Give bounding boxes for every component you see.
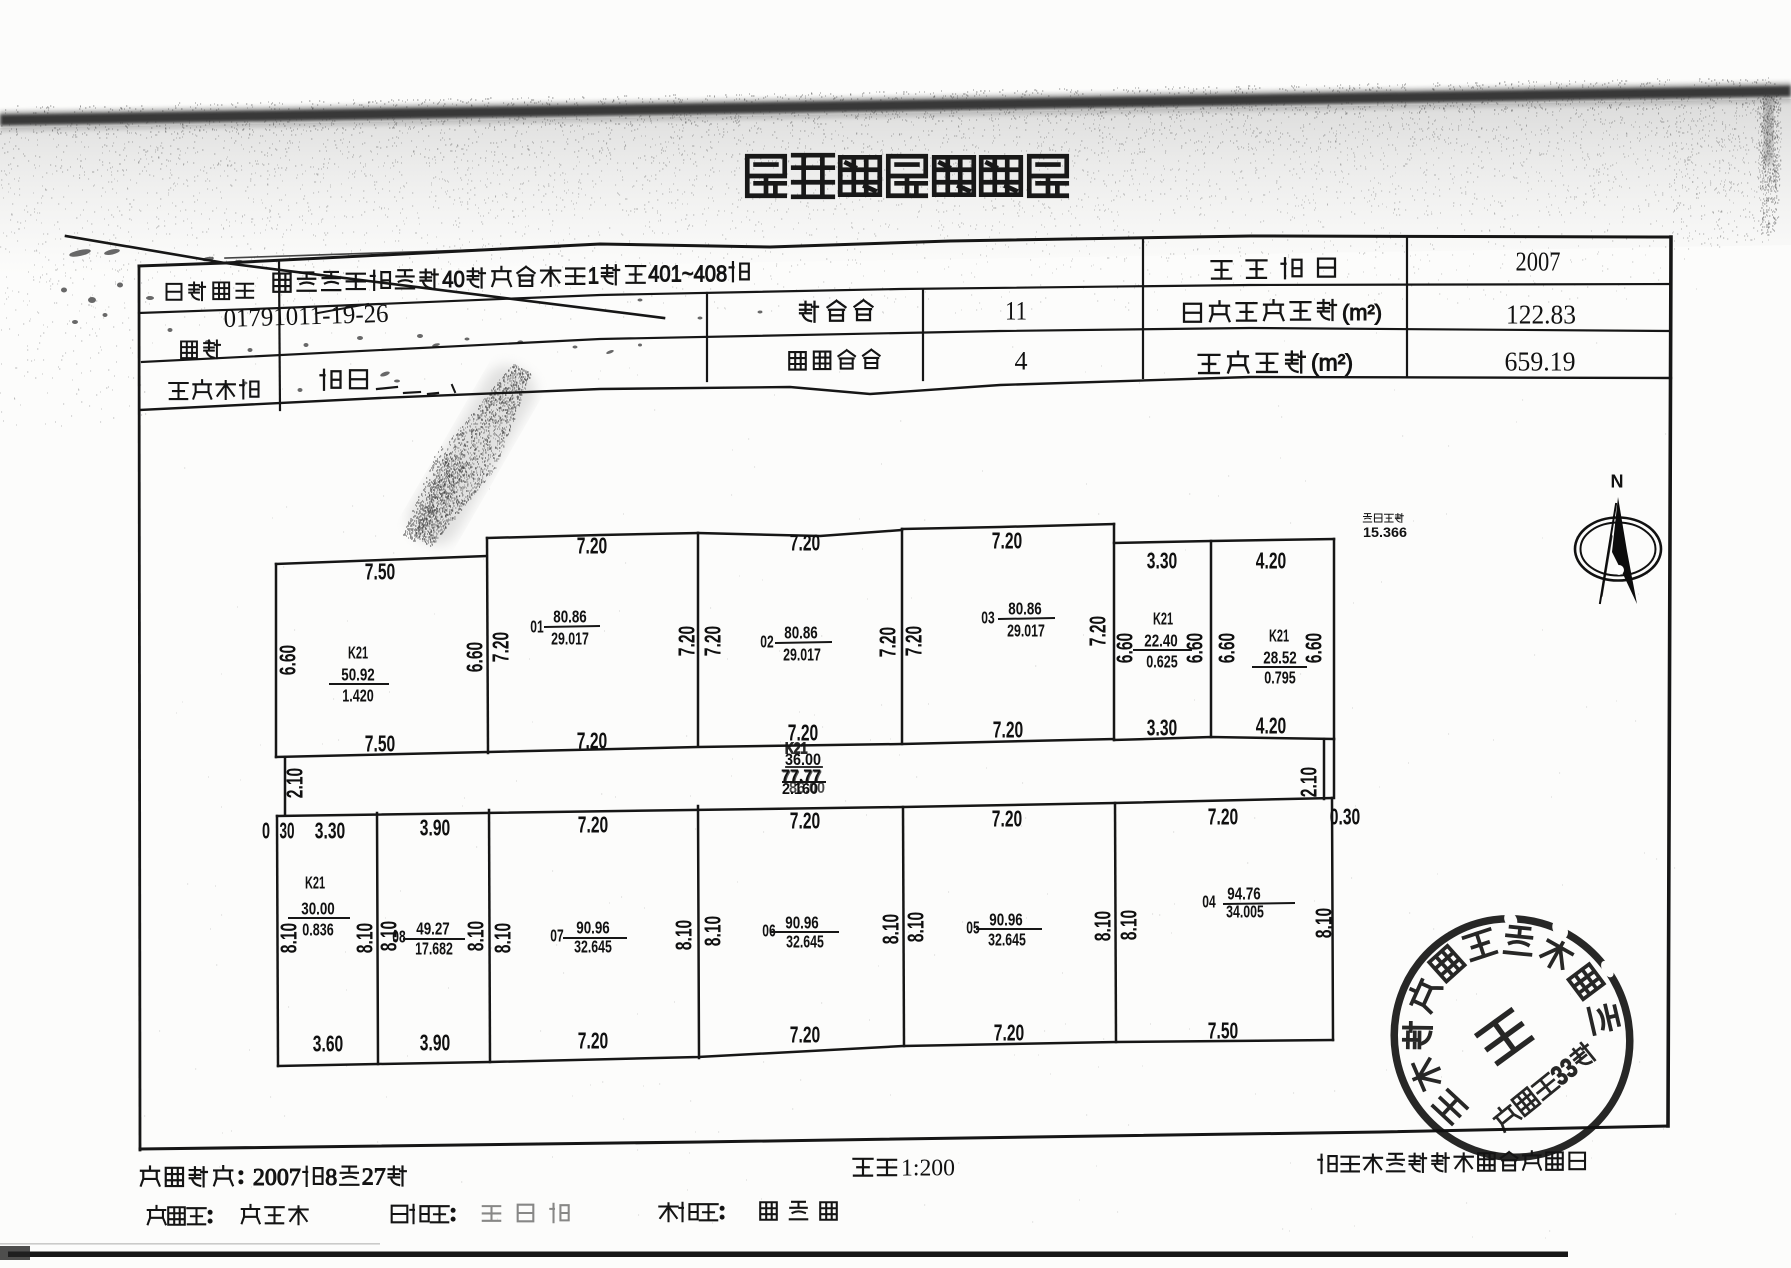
svg-text:0: 0 (262, 818, 270, 844)
svg-text:11: 11 (1005, 296, 1027, 325)
svg-text:32.645: 32.645 (988, 929, 1026, 949)
svg-text:1: 1 (588, 263, 599, 289)
svg-text:0.836: 0.836 (302, 919, 334, 939)
svg-text:401~408: 401~408 (648, 260, 727, 286)
svg-text:8.10: 8.10 (352, 923, 378, 953)
svg-text:3.90: 3.90 (420, 1030, 450, 1056)
svg-text:7.20: 7.20 (577, 728, 607, 754)
svg-text:1:200: 1:200 (901, 1156, 955, 1182)
svg-text:7.20: 7.20 (674, 626, 700, 656)
svg-text:29.017: 29.017 (551, 628, 589, 648)
svg-text:8.10: 8.10 (1311, 908, 1337, 938)
svg-text:K21: K21 (1153, 608, 1173, 628)
svg-text:7.20: 7.20 (578, 1028, 608, 1054)
svg-text:28.52: 28.52 (1263, 647, 1297, 667)
svg-text:122.83: 122.83 (1506, 300, 1576, 330)
svg-text:05: 05 (966, 917, 980, 937)
svg-text:7.20: 7.20 (790, 530, 820, 556)
svg-text:8.10: 8.10 (671, 920, 697, 950)
svg-text:3.30: 3.30 (1147, 548, 1177, 574)
svg-text:49.27: 49.27 (416, 918, 450, 938)
svg-text:86.00: 86.00 (789, 780, 825, 797)
svg-text:7.20: 7.20 (901, 626, 927, 656)
svg-text:8: 8 (325, 1165, 337, 1191)
svg-text:7.20: 7.20 (700, 626, 726, 656)
svg-text:15.366: 15.366 (1363, 524, 1407, 540)
svg-text:K21: K21 (305, 872, 325, 892)
svg-text:7.50: 7.50 (365, 559, 395, 585)
svg-text:30.00: 30.00 (301, 898, 335, 918)
svg-text:07: 07 (550, 925, 563, 945)
svg-text:0.30: 0.30 (1330, 804, 1360, 830)
svg-text:94.76: 94.76 (1227, 883, 1261, 903)
svg-text:32.645: 32.645 (574, 936, 612, 956)
svg-text:7.50: 7.50 (1208, 1018, 1238, 1044)
svg-text:8.10: 8.10 (903, 912, 929, 942)
svg-text:30: 30 (280, 818, 295, 844)
svg-text:7.50: 7.50 (365, 731, 395, 757)
svg-text:7.20: 7.20 (790, 808, 820, 834)
svg-text:8.10: 8.10 (490, 923, 516, 953)
svg-text:90.96: 90.96 (576, 917, 610, 937)
svg-text:7.20: 7.20 (488, 632, 514, 662)
svg-text:6.60: 6.60 (275, 645, 301, 675)
svg-text:K21: K21 (348, 642, 368, 662)
svg-text:27: 27 (362, 1165, 386, 1191)
svg-text:90.96: 90.96 (989, 909, 1023, 929)
svg-text:(m²): (m²) (1311, 349, 1353, 375)
svg-text:7.20: 7.20 (994, 1020, 1024, 1046)
svg-text:8.10: 8.10 (1116, 910, 1142, 940)
svg-text:0.795: 0.795 (1264, 667, 1296, 687)
svg-text:29.017: 29.017 (783, 644, 821, 664)
svg-text:22.40: 22.40 (1144, 630, 1178, 650)
svg-text:3.30: 3.30 (1147, 715, 1177, 741)
svg-text:29.017: 29.017 (1007, 620, 1045, 640)
svg-text:2007: 2007 (1516, 247, 1561, 277)
svg-text:K21: K21 (1269, 625, 1289, 645)
svg-text:4.20: 4.20 (1256, 548, 1286, 574)
svg-text:0.625: 0.625 (1146, 651, 1178, 671)
svg-text:04: 04 (1202, 891, 1216, 911)
svg-text:50.92: 50.92 (341, 664, 375, 684)
svg-text:7.20: 7.20 (578, 812, 608, 838)
svg-text:2.10: 2.10 (1296, 767, 1322, 797)
svg-text:4.20: 4.20 (1256, 713, 1286, 739)
svg-text:7.20: 7.20 (993, 717, 1023, 743)
svg-text:7.20: 7.20 (992, 806, 1022, 832)
svg-text:2.10: 2.10 (282, 768, 308, 798)
svg-text:3.60: 3.60 (313, 1031, 343, 1057)
svg-text:659.19: 659.19 (1505, 347, 1576, 377)
svg-text:17.682: 17.682 (415, 938, 453, 958)
svg-text:90.96: 90.96 (785, 912, 819, 932)
svg-text:7.20: 7.20 (992, 528, 1022, 554)
svg-text:7.20: 7.20 (577, 533, 607, 559)
svg-text:3.30: 3.30 (315, 818, 345, 844)
svg-text:7.20: 7.20 (875, 627, 901, 657)
svg-text:1.420: 1.420 (342, 685, 374, 705)
svg-text:40: 40 (442, 266, 465, 292)
svg-text:8.10: 8.10 (878, 914, 904, 944)
svg-text:6.60: 6.60 (1301, 633, 1327, 663)
svg-text:3.90: 3.90 (420, 815, 450, 841)
svg-text:4: 4 (1015, 346, 1028, 375)
svg-text:01: 01 (530, 616, 544, 636)
svg-text:8.10: 8.10 (276, 923, 302, 953)
svg-text:03: 03 (981, 607, 995, 627)
svg-text:32.645: 32.645 (786, 931, 824, 951)
svg-text:2007: 2007 (253, 1165, 301, 1191)
svg-text:80.86: 80.86 (784, 622, 818, 642)
svg-text:80.86: 80.86 (553, 606, 587, 626)
svg-text:8.10: 8.10 (1090, 911, 1116, 941)
svg-text:8.10: 8.10 (463, 921, 489, 951)
svg-text:6.60: 6.60 (1182, 633, 1208, 663)
svg-text:(m²): (m²) (1342, 300, 1382, 325)
svg-text:N: N (1611, 472, 1624, 492)
svg-text:6.60: 6.60 (1214, 633, 1240, 663)
svg-text:80.86: 80.86 (1008, 598, 1042, 618)
svg-text:7.20: 7.20 (1208, 804, 1238, 830)
svg-text:06: 06 (762, 920, 776, 940)
svg-text:7.20: 7.20 (790, 1022, 820, 1048)
svg-text:34.005: 34.005 (1226, 901, 1264, 921)
svg-text:6.60: 6.60 (462, 642, 488, 672)
svg-text:8.10: 8.10 (700, 916, 726, 946)
svg-text:6.60: 6.60 (1112, 633, 1138, 663)
svg-text:7.20: 7.20 (1085, 616, 1111, 646)
svg-text:08: 08 (392, 926, 406, 946)
svg-text:02: 02 (760, 631, 774, 651)
